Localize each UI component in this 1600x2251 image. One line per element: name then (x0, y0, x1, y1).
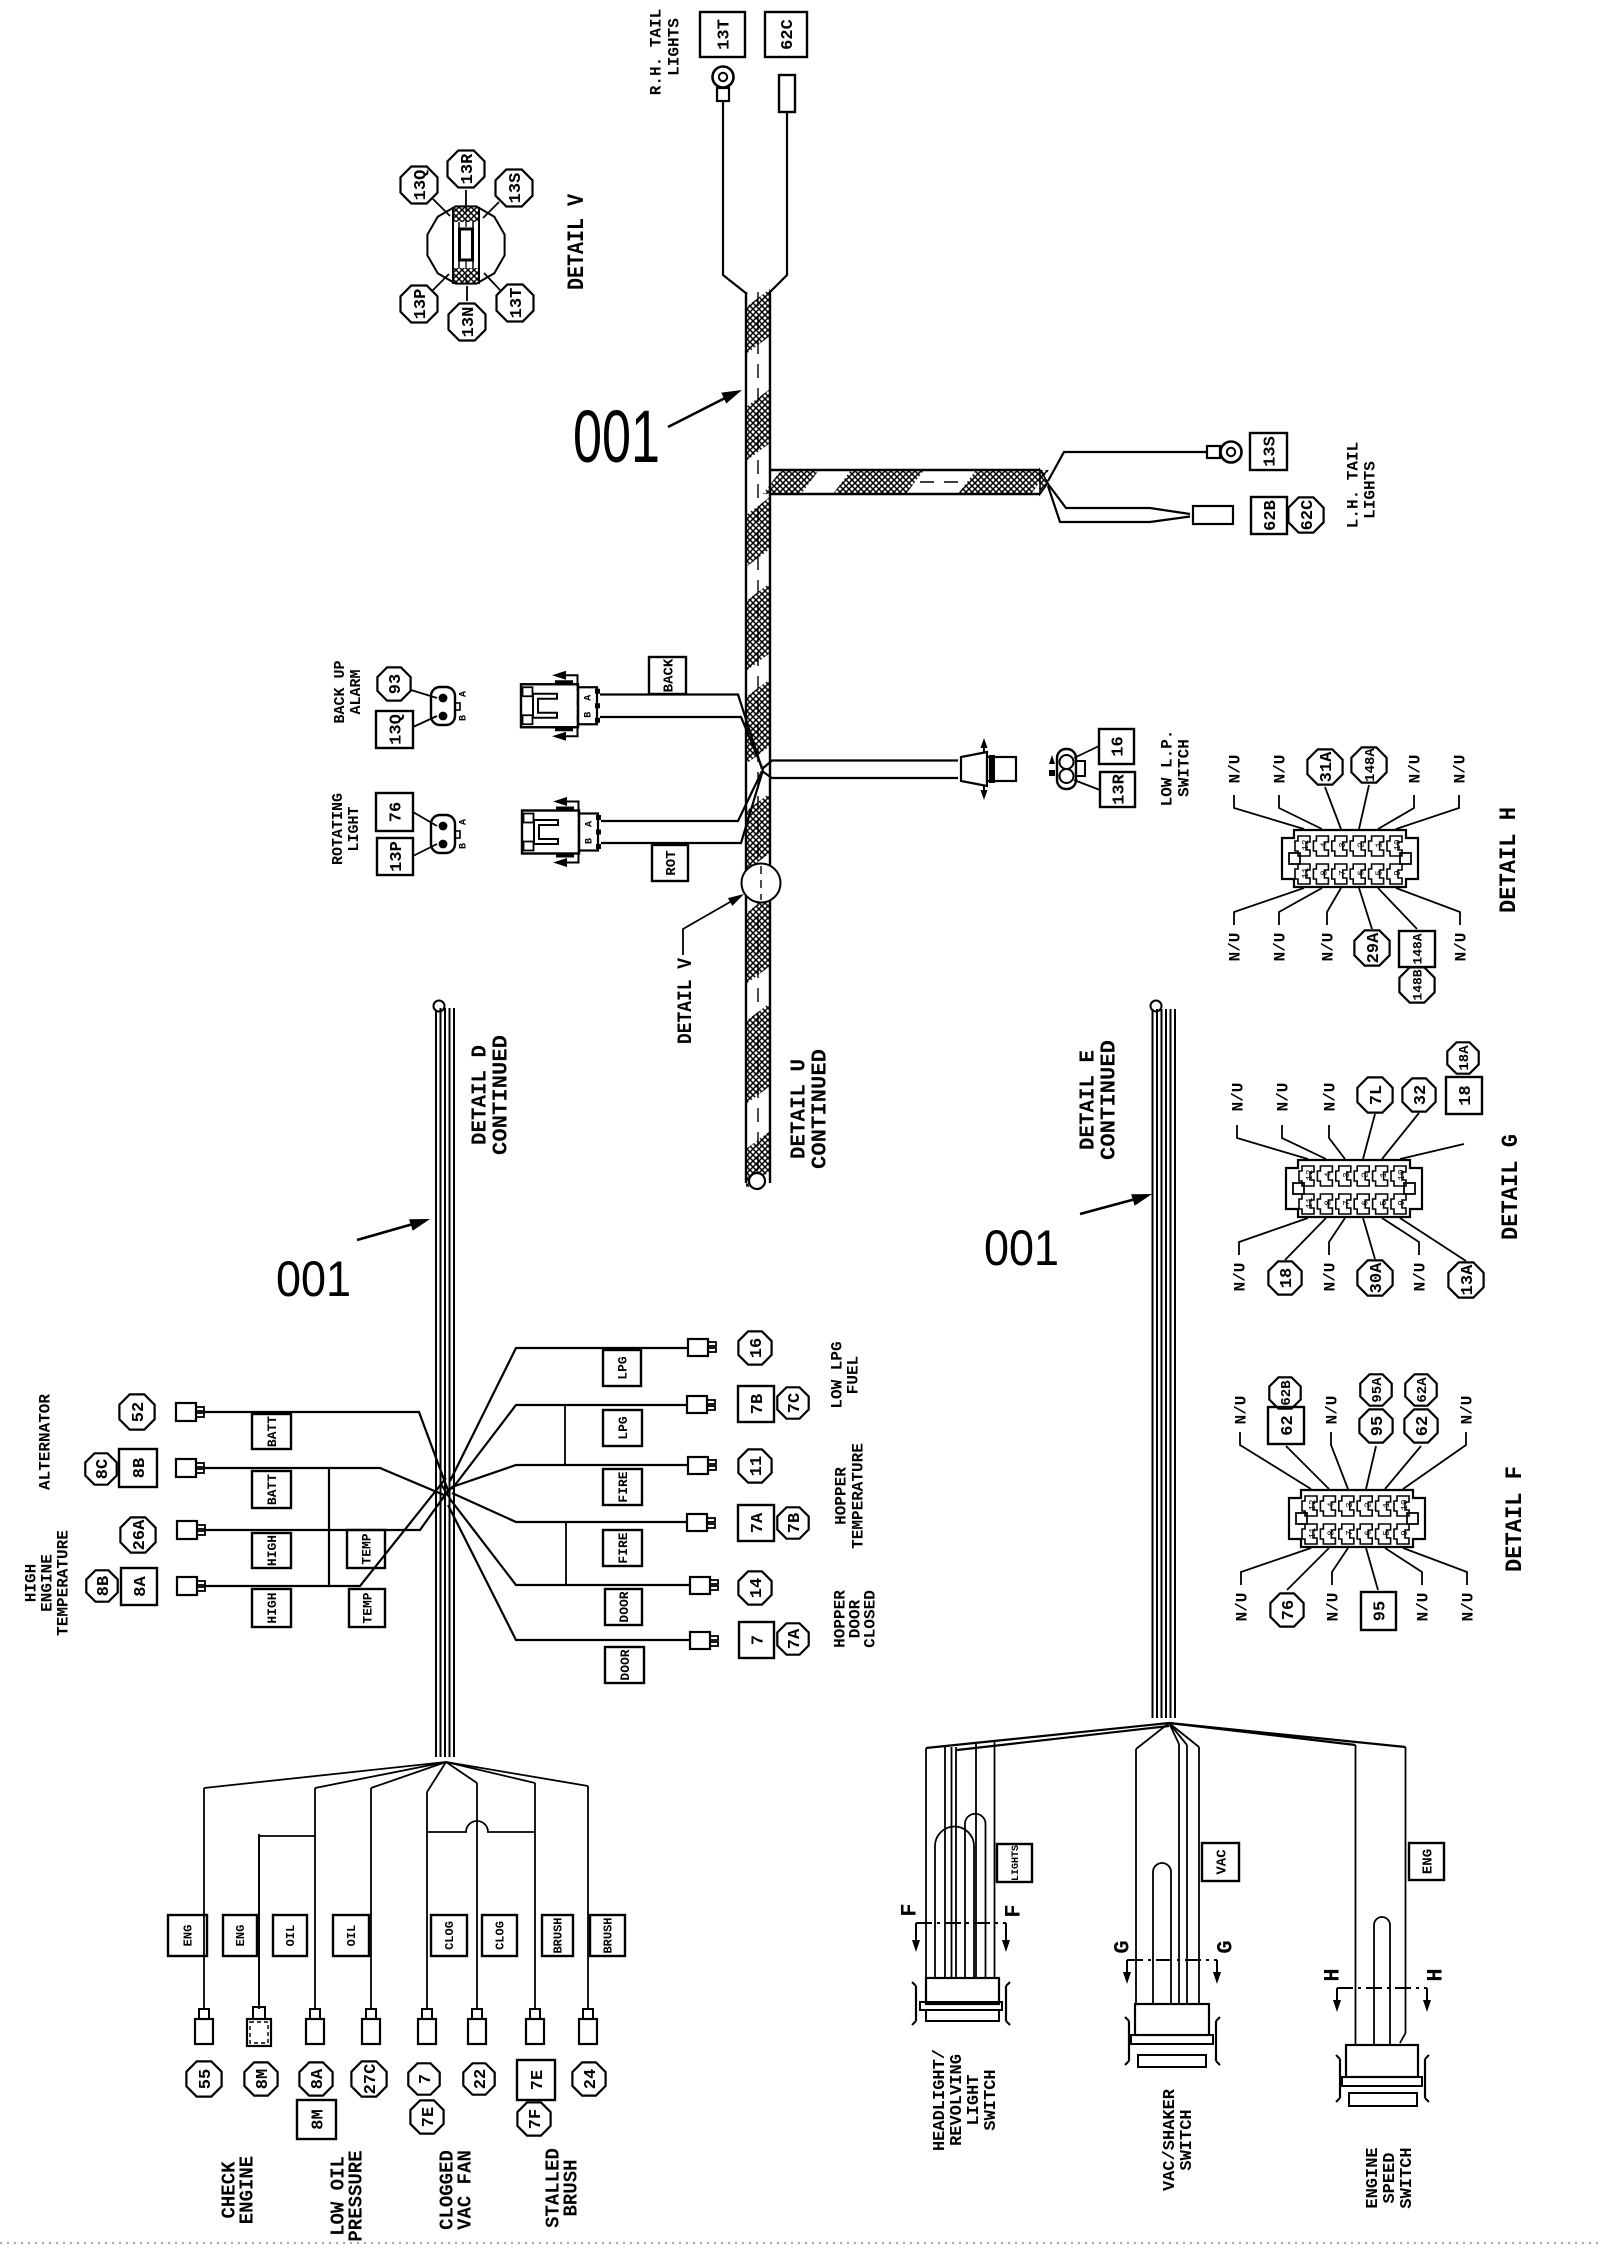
svg-text:DOOR: DOOR (617, 1591, 632, 1622)
svg-text:2: 2 (1360, 1172, 1370, 1177)
svg-text:13N: 13N (460, 307, 479, 338)
svg-text:H: H (1424, 1968, 1449, 1981)
svg-text:A: A (583, 695, 594, 701)
svg-text:N/U: N/U (1272, 933, 1290, 962)
svg-text:18: 18 (1278, 1268, 1297, 1288)
svg-text:TEMP: TEMP (360, 1533, 375, 1564)
svg-text:LIGHT: LIGHT (346, 806, 363, 851)
svg-text:BRUSH: BRUSH (602, 1917, 616, 1953)
svg-text:A: A (459, 691, 470, 697)
svg-text:9: 9 (1400, 1530, 1410, 1535)
svg-text:CLOG: CLOG (494, 1921, 508, 1950)
svg-text:SWITCH: SWITCH (982, 2069, 1001, 2130)
svg-text:76: 76 (388, 802, 407, 822)
svg-text:7F: 7F (527, 2109, 546, 2129)
svg-text:27C: 27C (362, 2064, 381, 2095)
svg-text:ENGINE: ENGINE (237, 2156, 259, 2224)
svg-text:95: 95 (1369, 1416, 1388, 1436)
svg-text:HOPPER: HOPPER (833, 1467, 851, 1525)
svg-text:13R: 13R (1111, 773, 1130, 804)
svg-text:52: 52 (130, 1402, 149, 1422)
svg-text:B: B (459, 843, 470, 849)
svg-text:N/U: N/U (1322, 1083, 1340, 1112)
svg-text:N/U: N/U (1452, 755, 1470, 784)
svg-text:HIGH: HIGH (265, 1592, 280, 1623)
svg-text:24: 24 (582, 2069, 601, 2089)
svg-text:8A: 8A (132, 1576, 151, 1597)
svg-text:ENG: ENG (182, 1925, 196, 1947)
svg-text:3: 3 (1342, 1172, 1352, 1177)
svg-text:OIL: OIL (284, 1925, 298, 1947)
svg-text:CLOG: CLOG (443, 1921, 457, 1950)
svg-text:11: 11 (748, 1456, 767, 1476)
svg-text:7: 7 (1338, 870, 1348, 875)
svg-text:13S: 13S (507, 173, 526, 204)
svg-text:DETAIL V: DETAIL V (675, 958, 698, 1044)
svg-text:SWITCH: SWITCH (1398, 2147, 1417, 2208)
svg-text:30A: 30A (1368, 1262, 1387, 1293)
svg-text:CONTINUED: CONTINUED (490, 1035, 513, 1155)
svg-text:DOOR: DOOR (618, 1649, 633, 1680)
svg-text:8B: 8B (95, 1576, 114, 1596)
svg-text:CONTINUED: CONTINUED (809, 1049, 832, 1169)
svg-text:7B: 7B (749, 1394, 768, 1414)
svg-text:13Q: 13Q (388, 714, 407, 745)
svg-text:N/U: N/U (1453, 933, 1471, 962)
svg-text:LPG: LPG (616, 1356, 631, 1380)
svg-text:F: F (898, 1903, 923, 1916)
svg-text:6: 6 (1363, 1530, 1373, 1535)
svg-text:13S: 13S (1261, 436, 1280, 467)
svg-text:2: 2 (1356, 842, 1366, 847)
svg-text:9: 9 (1393, 870, 1403, 875)
svg-text:N/U: N/U (1275, 1083, 1293, 1112)
svg-text:DETAIL U: DETAIL U (788, 1059, 811, 1159)
svg-text:001: 001 (276, 1251, 351, 1307)
svg-text:8: 8 (1327, 1530, 1337, 1535)
svg-text:FIRE: FIRE (616, 1532, 631, 1563)
svg-text:55: 55 (197, 2069, 216, 2089)
svg-text:5: 5 (1382, 1530, 1392, 1535)
svg-text:7: 7 (750, 1635, 769, 1645)
svg-text:DETAIL D: DETAIL D (469, 1045, 492, 1145)
svg-text:FUEL: FUEL (845, 1356, 863, 1394)
svg-text:16: 16 (1110, 736, 1129, 756)
svg-text:2: 2 (1363, 1502, 1373, 1507)
svg-text:BRUSH: BRUSH (561, 2159, 583, 2216)
svg-text:8M: 8M (309, 2109, 328, 2129)
svg-text:3: 3 (1338, 842, 1348, 847)
svg-text:B: B (583, 712, 594, 718)
svg-text:14: 14 (748, 1578, 767, 1598)
svg-text:8: 8 (1324, 1200, 1334, 1205)
svg-text:6: 6 (1360, 1200, 1370, 1205)
svg-text:LIGHTS: LIGHTS (666, 18, 684, 76)
svg-text:CLOSED: CLOSED (862, 1590, 880, 1648)
svg-text:7A: 7A (786, 1628, 805, 1649)
svg-text:148B: 148B (1411, 969, 1426, 1000)
svg-text:7: 7 (1342, 1200, 1352, 1205)
svg-text:N/U: N/U (1234, 1593, 1252, 1622)
svg-text:F: F (1002, 1904, 1027, 1917)
svg-text:N/U: N/U (1232, 1263, 1250, 1292)
svg-text:32: 32 (1412, 1085, 1431, 1105)
svg-text:BRUSH: BRUSH (552, 1917, 566, 1953)
svg-text:8M: 8M (254, 2069, 273, 2089)
svg-text:L.H. TAIL: L.H. TAIL (1345, 442, 1363, 528)
svg-text:7E: 7E (420, 2107, 439, 2127)
svg-text:12: 12 (1308, 1500, 1318, 1511)
svg-text:3: 3 (1345, 1502, 1355, 1507)
svg-text:B: B (459, 715, 470, 721)
svg-text:16: 16 (748, 1338, 767, 1358)
svg-text:10: 10 (1393, 840, 1403, 851)
svg-text:12: 12 (1305, 1170, 1315, 1181)
svg-text:B: B (585, 838, 596, 844)
svg-text:148A: 148A (1363, 748, 1379, 782)
svg-text:13P: 13P (388, 841, 407, 872)
svg-text:10: 10 (1397, 1170, 1407, 1181)
svg-text:9: 9 (1397, 1200, 1407, 1205)
svg-text:ALARM: ALARM (348, 669, 365, 714)
svg-text:10: 10 (1400, 1500, 1410, 1511)
svg-text:12: 12 (1301, 840, 1311, 851)
svg-text:LOW L.P.: LOW L.P. (1159, 730, 1177, 807)
svg-text:SWITCH: SWITCH (1178, 2109, 1197, 2170)
svg-text:13Q: 13Q (412, 170, 431, 201)
svg-text:13A: 13A (1459, 1264, 1478, 1295)
svg-text:76: 76 (1280, 1600, 1299, 1620)
svg-text:N/U: N/U (1415, 1593, 1433, 1622)
svg-text:TEMPERATURE: TEMPERATURE (850, 1443, 868, 1549)
svg-text:N/U: N/U (1227, 933, 1245, 962)
svg-text:N/U: N/U (1230, 1083, 1248, 1112)
svg-text:N/U: N/U (1320, 933, 1338, 962)
svg-text:18: 18 (1457, 1085, 1476, 1105)
svg-text:7A: 7A (749, 1512, 768, 1533)
svg-text:7: 7 (417, 2074, 436, 2084)
svg-text:7: 7 (1345, 1530, 1355, 1535)
svg-text:13R: 13R (459, 153, 478, 184)
svg-text:11: 11 (1305, 1198, 1315, 1209)
svg-text:4: 4 (1324, 1172, 1334, 1177)
svg-text:SWITCH: SWITCH (1176, 739, 1194, 797)
svg-text:BATT: BATT (265, 1474, 280, 1505)
svg-text:N/U: N/U (1407, 755, 1425, 784)
svg-text:CONTINUED: CONTINUED (1098, 1040, 1121, 1160)
svg-text:95A: 95A (1370, 1377, 1386, 1403)
svg-text:7C: 7C (786, 1393, 805, 1413)
svg-text:N/U: N/U (1325, 1593, 1343, 1622)
svg-text:TEMPERATURE: TEMPERATURE (55, 1530, 73, 1636)
svg-text:22: 22 (472, 2069, 491, 2089)
svg-text:13P: 13P (412, 289, 431, 320)
svg-text:N/U: N/U (1460, 1593, 1478, 1622)
svg-text:148A: 148A (1411, 933, 1426, 964)
svg-text:8C: 8C (94, 1459, 113, 1479)
svg-text:ROT: ROT (664, 850, 680, 875)
svg-text:R.H. TAIL: R.H. TAIL (648, 9, 666, 95)
svg-text:93: 93 (387, 674, 406, 694)
svg-text:8A: 8A (309, 2068, 328, 2089)
svg-text:N/U: N/U (1272, 755, 1290, 784)
svg-text:62C: 62C (779, 19, 798, 50)
svg-text:BACK: BACK (661, 658, 677, 692)
svg-text:A: A (585, 821, 596, 827)
svg-text:BACK UP: BACK UP (332, 660, 349, 723)
svg-text:ROTATING: ROTATING (330, 793, 347, 865)
svg-text:N/U: N/U (1227, 755, 1245, 784)
svg-text:VAC FAN: VAC FAN (455, 2150, 477, 2230)
svg-text:H: H (1321, 1968, 1346, 1981)
svg-text:13T: 13T (716, 19, 735, 50)
svg-text:TEMP: TEMP (361, 1592, 376, 1623)
svg-text:62: 62 (1279, 1415, 1298, 1435)
svg-text:62: 62 (1414, 1416, 1433, 1436)
svg-text:18A: 18A (1457, 1045, 1473, 1071)
svg-text:LIGHTS: LIGHTS (1362, 461, 1380, 519)
svg-text:N/U: N/U (1459, 1396, 1477, 1425)
svg-text:ALTERNATOR: ALTERNATOR (37, 1394, 55, 1490)
svg-text:PRESSURE: PRESSURE (346, 2150, 368, 2241)
svg-text:62C: 62C (1299, 500, 1318, 531)
svg-text:1: 1 (1375, 842, 1385, 847)
svg-text:29A: 29A (1365, 932, 1384, 963)
svg-text:4: 4 (1327, 1502, 1337, 1507)
svg-text:001: 001 (573, 395, 660, 478)
svg-text:62B: 62B (1262, 500, 1281, 531)
svg-text:N/U: N/U (1233, 1396, 1251, 1425)
svg-text:1: 1 (1379, 1172, 1389, 1177)
svg-text:DETAIL G: DETAIL G (1498, 1134, 1524, 1240)
svg-text:N/U: N/U (1322, 1263, 1340, 1292)
svg-text:8: 8 (1320, 870, 1330, 875)
svg-text:DETAIL V: DETAIL V (564, 194, 590, 290)
svg-text:HIGH: HIGH (265, 1535, 280, 1566)
svg-text:1: 1 (1382, 1502, 1392, 1507)
svg-text:11: 11 (1301, 868, 1311, 879)
svg-text:DETAIL F: DETAIL F (1502, 1466, 1528, 1572)
svg-text:95: 95 (1372, 1601, 1391, 1621)
svg-text:FIRE: FIRE (616, 1471, 631, 1502)
svg-text:A: A (459, 819, 470, 825)
svg-text:N/U: N/U (1412, 1263, 1430, 1292)
svg-text:LIGHTS: LIGHTS (1011, 1845, 1022, 1881)
svg-text:62A: 62A (1415, 1377, 1431, 1403)
svg-text:G: G (1111, 1940, 1136, 1953)
svg-text:VAC: VAC (1214, 1849, 1230, 1875)
svg-text:ENG: ENG (1420, 1849, 1436, 1874)
svg-text:5: 5 (1379, 1200, 1389, 1205)
svg-text:ENG: ENG (234, 1925, 248, 1947)
svg-text:OIL: OIL (345, 1925, 359, 1947)
svg-text:62B: 62B (1279, 1380, 1295, 1406)
svg-text:DETAIL E: DETAIL E (1077, 1050, 1100, 1150)
svg-text:26A: 26A (131, 1519, 150, 1550)
svg-text:N/U: N/U (1324, 1396, 1342, 1425)
svg-text:6: 6 (1356, 870, 1366, 875)
svg-text:7L: 7L (1368, 1085, 1387, 1105)
svg-text:7B: 7B (786, 1513, 805, 1533)
svg-text:8B: 8B (131, 1458, 150, 1478)
svg-text:001: 001 (984, 1220, 1059, 1276)
svg-text:7E: 7E (529, 2070, 548, 2090)
svg-text:DETAIL H: DETAIL H (1496, 807, 1522, 913)
svg-text:4: 4 (1320, 842, 1330, 847)
svg-text:31A: 31A (1318, 751, 1337, 782)
svg-text:G: G (1214, 1940, 1239, 1953)
svg-text:BATT: BATT (265, 1416, 280, 1447)
svg-text:LPG: LPG (616, 1416, 631, 1440)
svg-text:5: 5 (1375, 870, 1385, 875)
svg-text:11: 11 (1308, 1528, 1318, 1539)
svg-text:13T: 13T (508, 288, 527, 319)
